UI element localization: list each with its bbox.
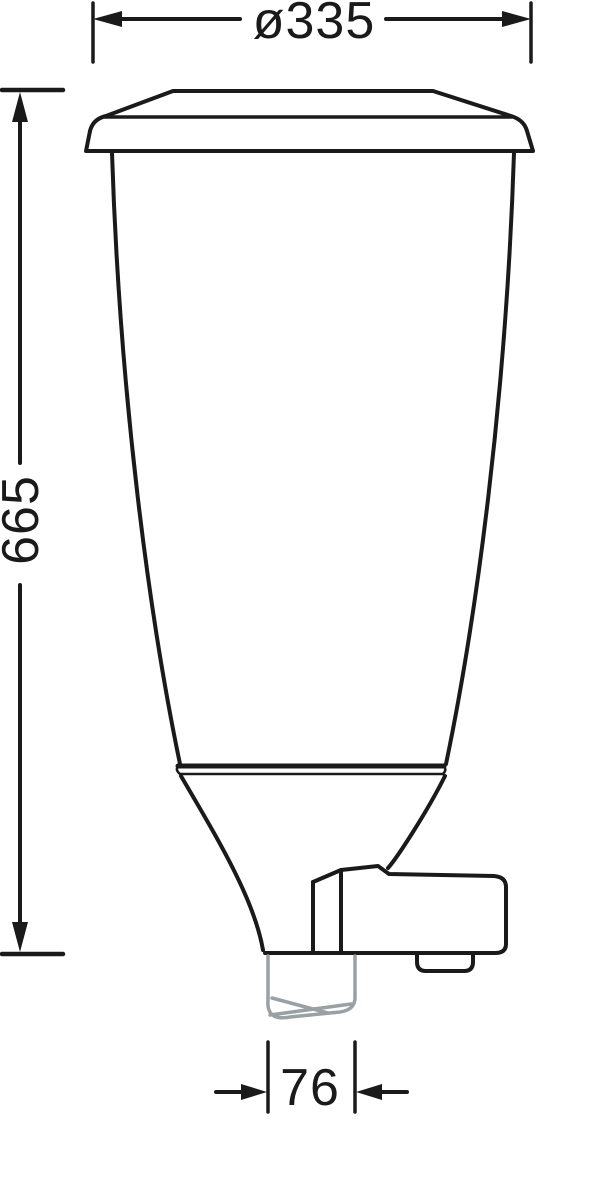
arrowhead-right-icon: [502, 11, 531, 27]
lid-outline: [86, 91, 533, 151]
arrowhead-up-icon: [12, 92, 28, 122]
dimension-label-top-diameter: ø335: [234, 0, 394, 47]
body-right-wall: [446, 153, 514, 764]
technical-drawing: ø335 665 76: [0, 0, 606, 1200]
funnel-right-wall: [388, 776, 445, 868]
mounting-tab-outline: [417, 955, 473, 971]
drawing-linework: [0, 0, 606, 1200]
body-left-wall: [112, 153, 180, 764]
container-outline: [86, 91, 533, 971]
arrowhead-left-icon: [93, 11, 122, 27]
funnel-left-wall: [181, 776, 263, 950]
arrowhead-down-icon: [12, 922, 28, 952]
dimension-label-outlet-width: 76: [230, 1062, 390, 1114]
outlet-housing-outline: [265, 866, 506, 953]
dimension-label-overall-height: 665: [0, 440, 47, 600]
flexible-spout: [268, 956, 355, 1018]
